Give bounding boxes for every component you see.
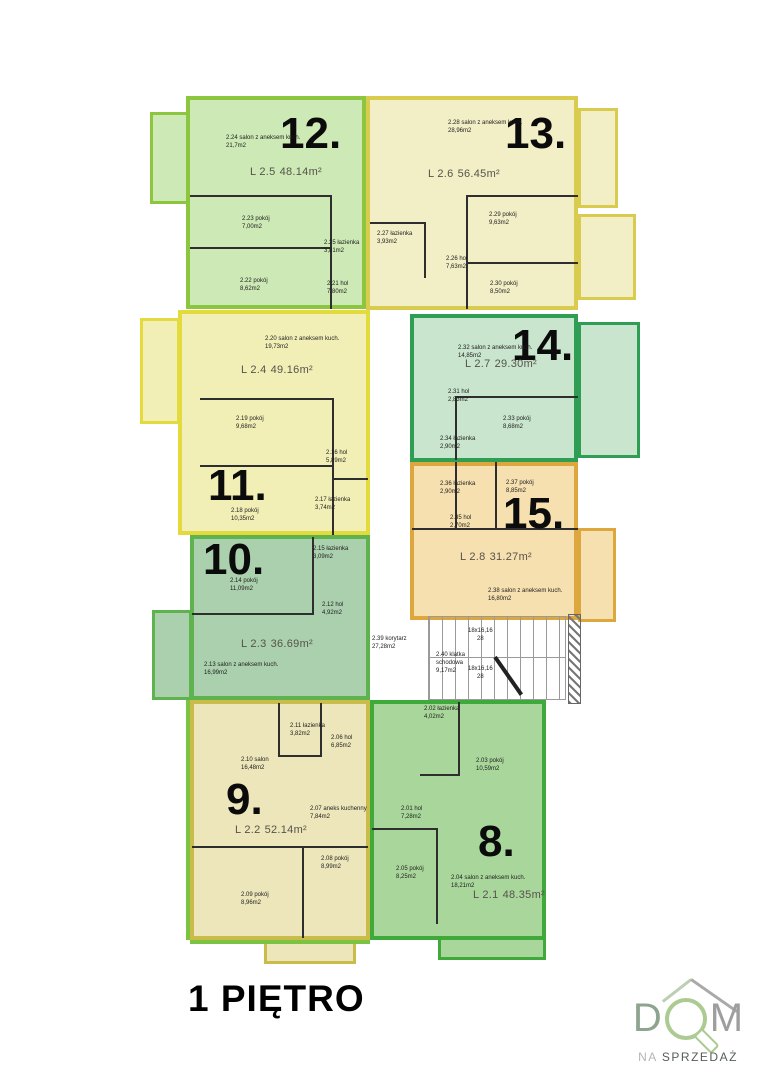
stair-run-label-bottom: 18x16,16 28 (468, 666, 493, 682)
interior-wall (192, 846, 368, 848)
logo-subtitle: NA SPRZEDAŻ (612, 1050, 764, 1064)
run-count: 28 (468, 636, 493, 644)
run-dim: 18x16,16 (468, 628, 493, 636)
apartment-12-unit-label: L 2.548.14m² (250, 166, 326, 178)
room-area: 7,28m2 (401, 814, 422, 822)
unit-code: L 2.1 (473, 889, 499, 901)
apartment-13-loggia (578, 214, 636, 300)
room-label: 2.26 hol7,63m2 (446, 256, 467, 272)
room-name: 2.06 hol (331, 735, 352, 743)
room-area: 8,99m2 (321, 864, 349, 872)
room-area: 8,50m2 (490, 289, 518, 297)
room-name: 2.05 pokój (396, 866, 424, 874)
room-area: 9,68m2 (236, 424, 264, 432)
room-label: 2.06 hol6,85m2 (331, 735, 352, 751)
apartment-10-unit-label: L 2.336.69m² (241, 638, 317, 650)
room-area: 5,89m2 (326, 458, 347, 466)
apartment-15-number: 15. (503, 492, 564, 536)
unit-code: L 2.2 (235, 824, 261, 836)
room-label: 2.09 pokój8,96m2 (241, 892, 269, 908)
interior-wall (200, 398, 332, 400)
room-name: 2.09 pokój (241, 892, 269, 900)
room-name: 2.02 łazienka (424, 706, 459, 714)
room-name: 2.31 hol (448, 389, 469, 397)
room-area: 3,09m2 (313, 554, 348, 562)
room-name: 2.24 salon z aneksem kuch. (226, 135, 300, 143)
unit-code: L 2.4 (241, 364, 267, 376)
unit-code: L 2.3 (241, 638, 267, 650)
room-area: 2,90m2 (440, 444, 475, 452)
interior-wall (302, 846, 304, 938)
room-area: 28,96m2 (448, 128, 522, 136)
stairwell-label: 2.40 klatka schodowa 9,17m2 (436, 652, 470, 675)
room-label: 2.05 pokój8,25m2 (396, 866, 424, 882)
room-label: 2.10 salon16,48m2 (241, 757, 269, 773)
room-area: 8,85m2 (506, 488, 534, 496)
room-name: 2.30 pokój (490, 281, 518, 289)
room-name: 2.39 korytarz (372, 636, 407, 644)
room-name: 2.35 hol (450, 515, 471, 523)
room-label: 2.08 pokój8,99m2 (321, 856, 349, 872)
room-name: 2.33 pokój (503, 416, 531, 424)
interior-wall (332, 478, 368, 480)
room-area: 19,73m2 (265, 344, 339, 352)
room-area: 2,70m2 (450, 523, 471, 531)
room-label: 2.35 hol2,70m2 (450, 515, 471, 531)
logo-wordmark: D M (612, 996, 764, 1041)
room-area: 11,09m2 (230, 586, 258, 594)
room-area: 16,80m2 (488, 596, 562, 604)
room-name: 2.28 salon z aneksem kuch. (448, 120, 522, 128)
apartment-14-balcony (578, 322, 640, 458)
interior-wall (190, 247, 330, 249)
room-name: 2.37 pokój (506, 480, 534, 488)
interior-wall (466, 262, 578, 264)
apartment-15-unit-label: L 2.831.27m² (460, 551, 536, 563)
room-area: 3,93m2 (377, 239, 412, 247)
interior-wall (192, 613, 312, 615)
apartment-11-number: 11. (208, 464, 267, 508)
apartment-13-unit-label: L 2.656.45m² (428, 168, 504, 180)
interior-wall (466, 195, 468, 309)
room-name: 2.11 łazienka (290, 723, 325, 731)
apartment-10-balcony (152, 610, 192, 700)
room-name: 2.38 salon z aneksem kuch. (488, 588, 562, 596)
room-label: 2.17 łazienka3,74m2 (315, 497, 350, 513)
room-label: 2.20 salon z aneksem kuch.19,73m2 (265, 336, 339, 352)
apartment-11-unit-label: L 2.449.16m² (241, 364, 317, 376)
room-label: 2.01 hol7,28m2 (401, 806, 422, 822)
room-area: 4,92m2 (322, 610, 343, 618)
room-name: 2.29 pokój (489, 212, 517, 220)
room-label: 2.04 salon z aneksem kuch.18,21m2 (451, 875, 525, 891)
run-dim: 18x16,16 (468, 666, 493, 674)
shaft-wall-hatch (568, 614, 581, 704)
room-name: 2.03 pokój (476, 758, 504, 766)
stair-direction-arrow (493, 656, 523, 696)
interior-wall (420, 774, 460, 776)
corridor-label: 2.39 korytarz 27,28m2 (372, 636, 407, 652)
apartment-9-unit-label: L 2.252.14m² (235, 824, 311, 836)
room-area: 16,99m2 (204, 670, 278, 678)
room-label: 2.19 pokój9,68m2 (236, 416, 264, 432)
room-area: 8,25m2 (396, 874, 424, 882)
interior-wall (190, 195, 330, 197)
room-name: 2.13 salon z aneksem kuch. (204, 662, 278, 670)
unit-area: 31.27m² (490, 551, 532, 563)
interior-wall (436, 828, 438, 924)
room-area: 14,85m2 (458, 353, 532, 361)
room-label: 2.38 salon z aneksem kuch.16,80m2 (488, 588, 562, 604)
room-name: 2.14 pokój (230, 578, 258, 586)
room-label: 2.21 hol7,80m2 (327, 281, 348, 297)
room-name: 2.15 łazienka (313, 546, 348, 554)
room-area: 21,7m2 (226, 143, 300, 151)
interior-wall (278, 703, 280, 757)
apartment-8-number: 8. (478, 820, 515, 864)
room-area: 3,82m2 (290, 731, 325, 739)
room-area: 7,63m2 (446, 264, 467, 272)
room-name: 2.19 pokój (236, 416, 264, 424)
interior-wall (370, 222, 424, 224)
floor-title: 1 PIĘTRO (188, 978, 365, 1020)
stair-run-label-top: 18x16,16 28 (468, 628, 493, 644)
room-label: 2.33 pokój8,68m2 (503, 416, 531, 432)
room-name: 2.32 salon z aneksem kuch. (458, 345, 532, 353)
unit-area: 36.69m² (271, 638, 313, 650)
logo-subtitle-na: NA (638, 1050, 657, 1064)
apartment-12-balcony (150, 112, 190, 204)
room-name: 2.22 pokój (240, 278, 268, 286)
room-label: 2.12 hol4,92m2 (322, 602, 343, 618)
unit-code: L 2.6 (428, 168, 454, 180)
room-label: 2.14 pokój11,09m2 (230, 578, 258, 594)
room-label: 2.29 pokój9,63m2 (489, 212, 517, 228)
room-area: 2,83m2 (448, 397, 469, 405)
apartment-15-balcony (578, 528, 616, 622)
logo-letter-d: D (633, 996, 662, 1041)
room-area: 3,81m2 (324, 248, 359, 256)
room-label: 2.11 łazienka3,82m2 (290, 723, 325, 739)
room-name: 2.27 łazienka (377, 231, 412, 239)
floor-plan-canvas: 2.39 korytarz 27,28m2 2.40 klatka schodo… (0, 0, 764, 1080)
room-name: 2.34 łazienka (440, 436, 475, 444)
room-label: 2.16 hol5,89m2 (326, 450, 347, 466)
run-count: 28 (468, 674, 493, 682)
unit-code: L 2.8 (460, 551, 486, 563)
apartment-8-unit-label: L 2.148.35m² (473, 889, 549, 901)
room-area: 8,96m2 (241, 900, 269, 908)
room-area: 7,00m2 (242, 224, 270, 232)
interior-wall (424, 222, 426, 278)
room-label: 2.30 pokój8,50m2 (490, 281, 518, 297)
room-name: 2.17 łazienka (315, 497, 350, 505)
room-label: 2.27 łazienka3,93m2 (377, 231, 412, 247)
room-name: 2.01 hol (401, 806, 422, 814)
room-name: 2.08 pokój (321, 856, 349, 864)
room-label: 2.32 salon z aneksem kuch.14,85m2 (458, 345, 532, 361)
room-label: 2.25 łazienka3,81m2 (324, 240, 359, 256)
room-area: 10,59m2 (476, 766, 504, 774)
apartment-13-balcony (578, 108, 618, 208)
room-label: 2.37 pokój8,85m2 (506, 480, 534, 496)
room-name: 2.36 łazienka (440, 481, 475, 489)
unit-area: 56.45m² (458, 168, 500, 180)
room-label: 2.34 łazienka2,90m2 (440, 436, 475, 452)
room-name: 2.23 pokój (242, 216, 270, 224)
apartment-10-number: 10. (203, 538, 264, 582)
room-label: 2.07 aneks kuchenny7,84m2 (310, 806, 367, 822)
room-name: 2.26 hol (446, 256, 467, 264)
room-name: 2.04 salon z aneksem kuch. (451, 875, 525, 883)
room-name: 2.16 hol (326, 450, 347, 458)
interior-wall (495, 462, 497, 528)
room-area: 8,62m2 (240, 286, 268, 294)
room-label: 2.36 łazienka2,90m2 (440, 481, 475, 497)
room-label: 2.28 salon z aneksem kuch.28,96m2 (448, 120, 522, 136)
room-area: 10,35m2 (231, 516, 259, 524)
logo-dom-na-sprzedaz: D M NA SPRZEDAŻ (612, 972, 764, 1072)
room-label: 2.22 pokój8,62m2 (240, 278, 268, 294)
unit-area: 48.14m² (280, 166, 322, 178)
room-area: 7,84m2 (310, 814, 367, 822)
room-label: 2.24 salon z aneksem kuch.21,7m2 (226, 135, 300, 151)
interior-wall (278, 755, 322, 757)
unit-area: 49.16m² (271, 364, 313, 376)
room-area: 6,85m2 (331, 743, 352, 751)
unit-area: 52.14m² (265, 824, 307, 836)
room-name: 2.07 aneks kuchenny (310, 806, 367, 814)
room-name: 2.25 łazienka (324, 240, 359, 248)
logo-subtitle-sprzedaz: SPRZEDAŻ (662, 1050, 738, 1064)
room-area: 16,48m2 (241, 765, 269, 773)
room-area: 18,21m2 (451, 883, 525, 891)
room-area: 3,74m2 (315, 505, 350, 513)
room-name: 2.18 pokój (231, 508, 259, 516)
room-area: 27,28m2 (372, 644, 407, 652)
interior-wall (468, 195, 578, 197)
room-area: 4,02m2 (424, 714, 459, 722)
room-area: 9,63m2 (489, 220, 517, 228)
unit-code: L 2.5 (250, 166, 276, 178)
interior-wall (332, 398, 334, 535)
room-name: 2.20 salon z aneksem kuch. (265, 336, 339, 344)
apartment-9-number: 9. (226, 778, 263, 822)
magnifier-icon (665, 998, 707, 1040)
room-name: 2.12 hol (322, 602, 343, 610)
logo-letter-m: M (710, 996, 743, 1041)
room-area: 2,90m2 (440, 489, 475, 497)
room-label: 2.23 pokój7,00m2 (242, 216, 270, 232)
room-name: 2.40 klatka schodowa (436, 652, 470, 668)
room-label: 2.18 pokój10,35m2 (231, 508, 259, 524)
apartment-11-balcony (140, 318, 180, 424)
room-area: 9,17m2 (436, 668, 470, 676)
room-label: 2.02 łazienka4,02m2 (424, 706, 459, 722)
room-label: 2.13 salon z aneksem kuch.16,99m2 (204, 662, 278, 678)
room-label: 2.31 hol2,83m2 (448, 389, 469, 405)
room-label: 2.15 łazienka3,09m2 (313, 546, 348, 562)
unit-area: 48.35m² (503, 889, 545, 901)
room-name: 2.21 hol (327, 281, 348, 289)
room-name: 2.10 salon (241, 757, 269, 765)
room-area: 8,68m2 (503, 424, 531, 432)
room-area: 7,80m2 (327, 289, 348, 297)
interior-wall (372, 828, 436, 830)
interior-wall (455, 396, 578, 398)
room-label: 2.03 pokój10,59m2 (476, 758, 504, 774)
